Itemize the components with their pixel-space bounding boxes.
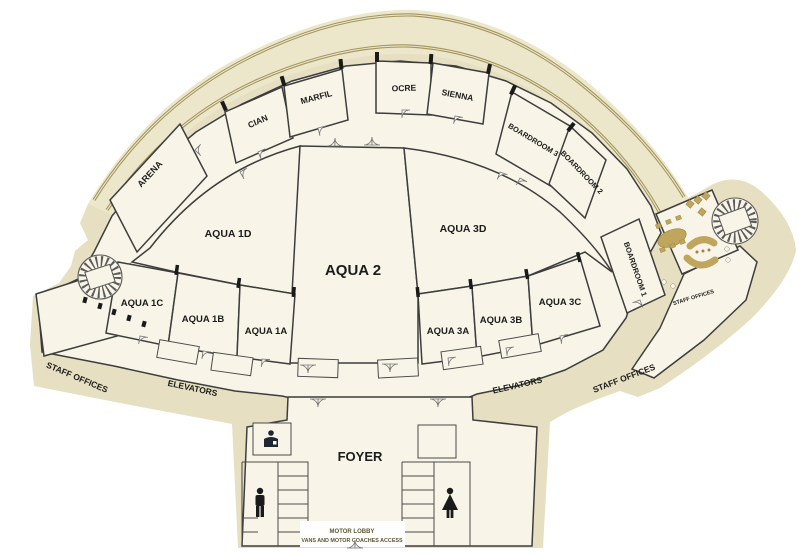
foyer-label: FOYER — [338, 449, 383, 464]
room-label: AQUA 2 — [325, 262, 381, 279]
service-room — [418, 425, 456, 458]
room-label: AQUA 3C — [539, 297, 582, 308]
room-aqua-1a: AQUA 1A — [237, 285, 295, 364]
room-label: AQUA 3D — [440, 223, 487, 235]
room-label: AQUA 3A — [427, 326, 470, 337]
motor-lobby-strip: MOTOR LOBBY VANS AND MOTOR COACHES ACCES… — [300, 521, 405, 547]
room-label: AQUA 1C — [121, 298, 164, 309]
motor-lobby-label: MOTOR LOBBY — [330, 529, 375, 535]
floor-plan-page: MOTOR LOBBY VANS AND MOTOR COACHES ACCES… — [0, 0, 807, 555]
room-label: AQUA 3B — [480, 315, 523, 326]
room-label: AQUA 1A — [245, 326, 288, 337]
floor-plan-canvas: MOTOR LOBBY VANS AND MOTOR COACHES ACCES… — [0, 0, 807, 555]
spiral-staircase-left — [78, 255, 122, 299]
hall-aqua-2: AQUA 2 — [288, 146, 418, 363]
spiral-staircase-right — [712, 198, 758, 244]
room-label: AQUA 1B — [182, 314, 225, 325]
room-label: OCRE — [391, 83, 416, 94]
room-label: AQUA 1D — [205, 228, 252, 240]
vans-access-label: VANS AND MOTOR COACHES ACCESS — [301, 538, 403, 544]
room-ocre: OCRE — [376, 61, 431, 115]
room-sienna: SIENNA — [427, 63, 489, 124]
